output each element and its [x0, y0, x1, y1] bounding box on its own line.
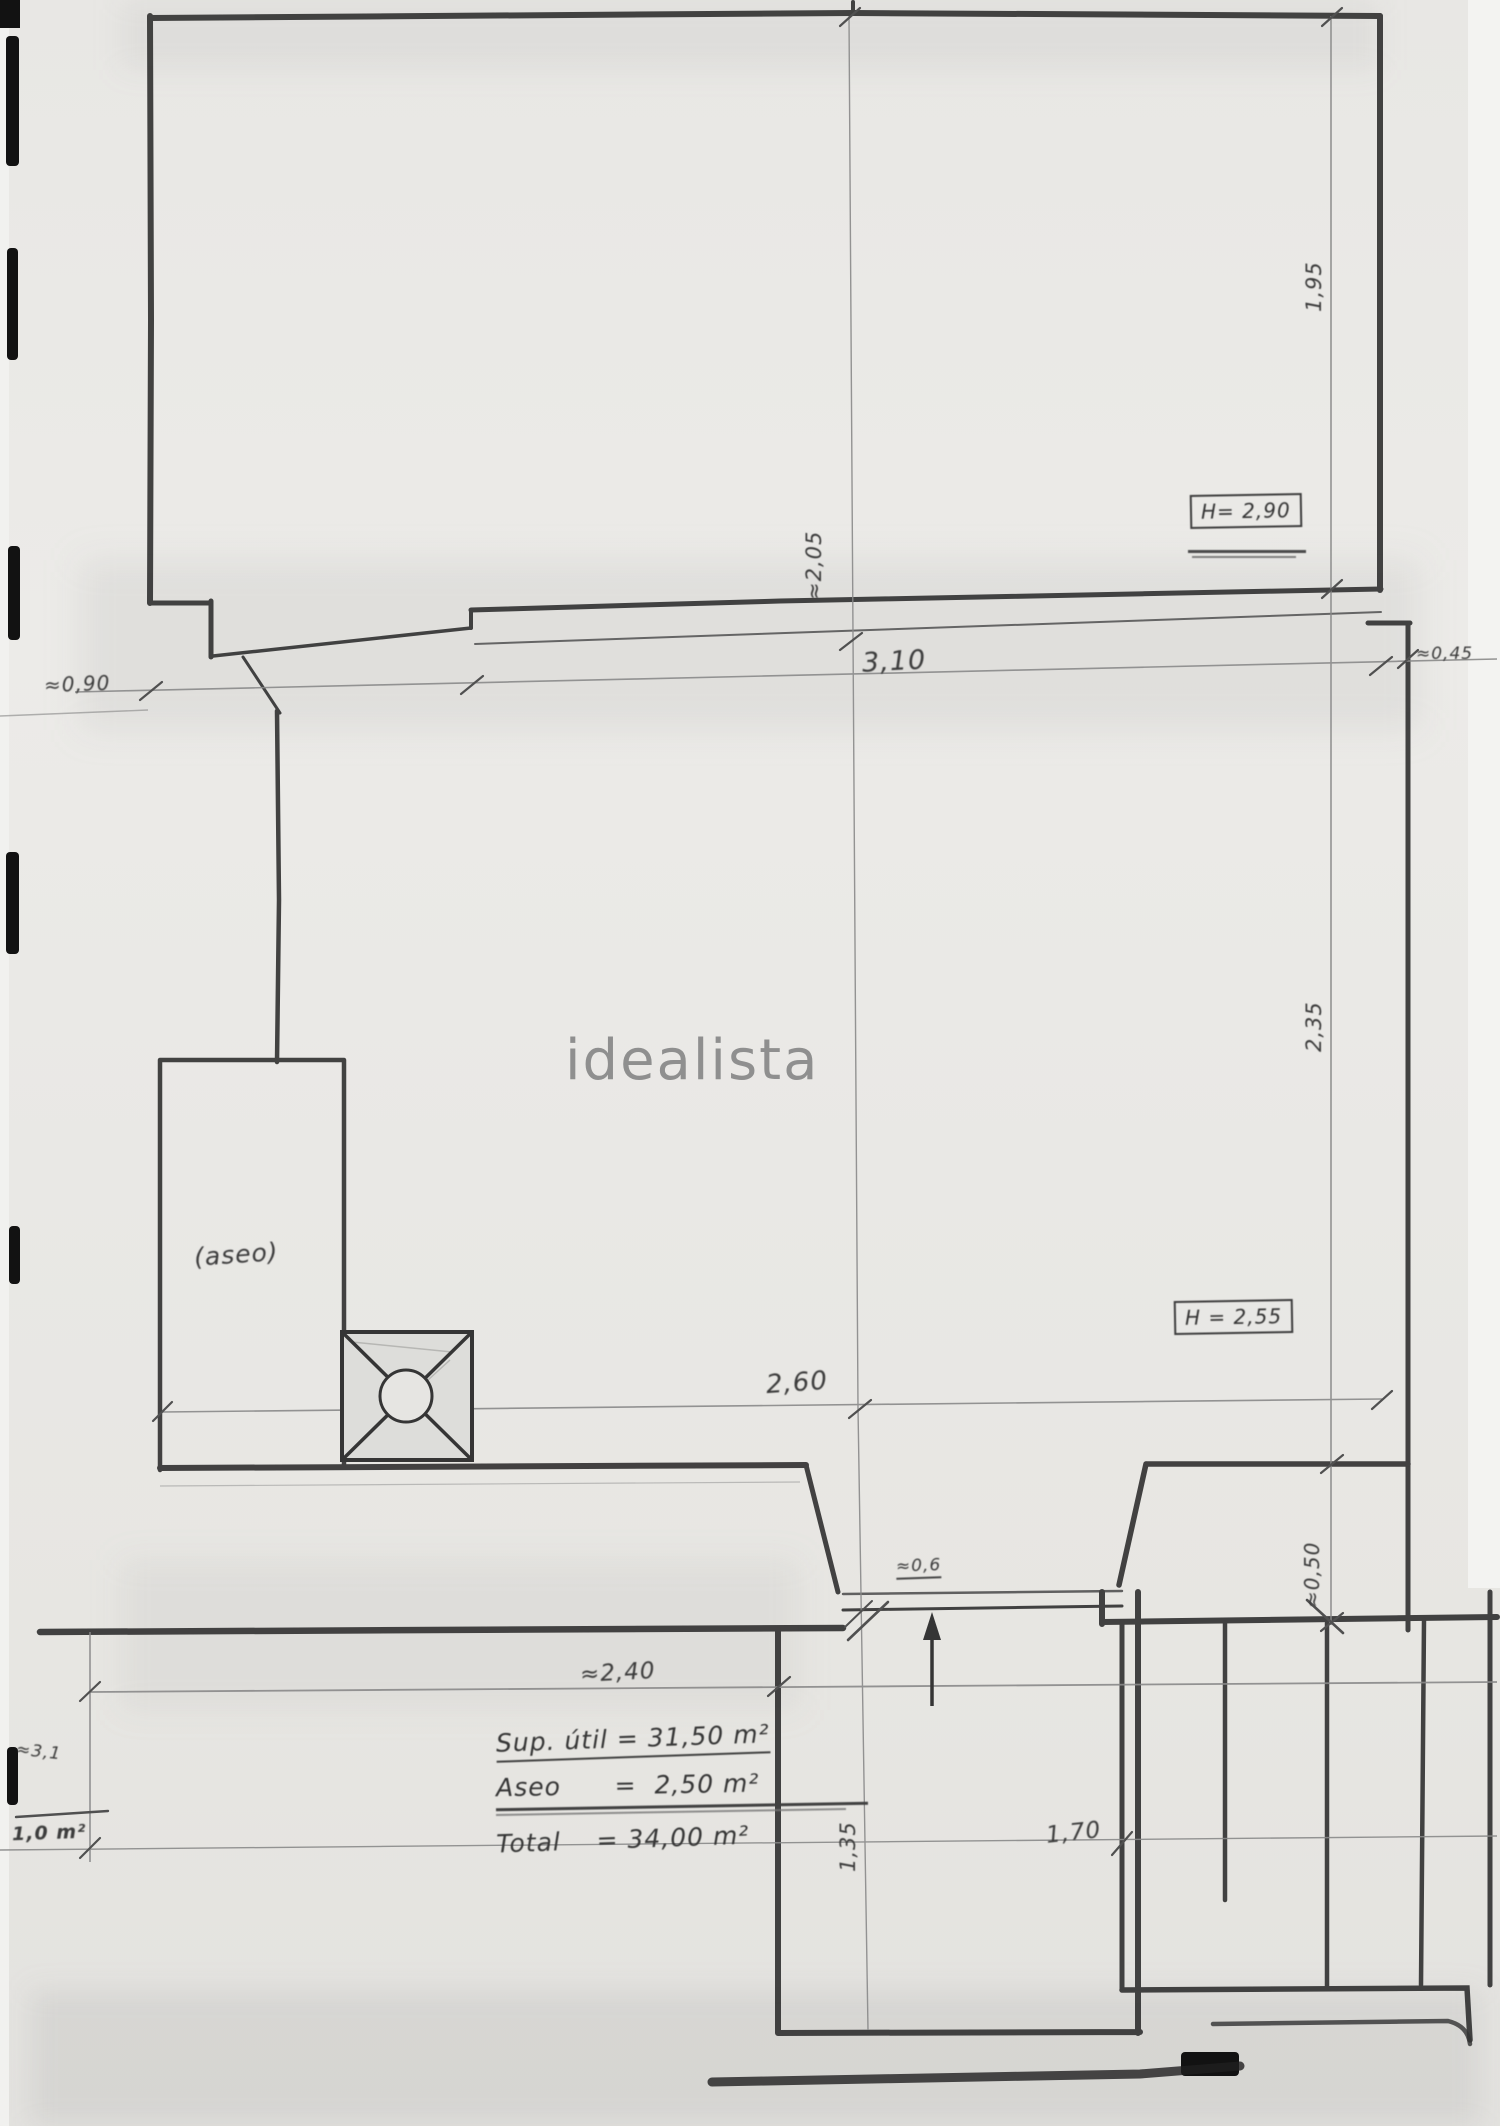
floorplan-scan: idealista 3,10 ≈0,90 ≈0,45 ≈2,05 1,95 2,…	[0, 0, 1500, 2126]
height-note-upper: H= 2,90	[1190, 493, 1302, 529]
room-label-toilet: (aseo)	[193, 1237, 279, 1272]
margin-note-bottom: 1,0 m²	[12, 1821, 87, 1846]
entry-arrow	[923, 1612, 941, 1706]
height-note-lower: H = 2,55	[1174, 1299, 1294, 1335]
paper-bottom-shadow	[712, 2066, 1240, 2082]
dim-label-right-upper: 1,95	[1302, 261, 1326, 312]
dim-label-room-width: 2,60	[765, 1366, 829, 1400]
area-summary: Sup. útil = 31,50 m² Aseo = 2,50 m² Tota…	[496, 1724, 868, 1852]
height-note-upper-underline	[1188, 550, 1306, 553]
dim-label-right-lower: ≈0,50	[1300, 1542, 1324, 1608]
dim-label-top-width: 3,10	[861, 644, 927, 678]
paper-right-margin	[1468, 0, 1500, 1588]
scan-layer: idealista 3,10 ≈0,90 ≈0,45 ≈2,05 1,95 2,…	[0, 0, 1500, 2126]
shower-tray-symbol	[342, 1332, 472, 1460]
dim-label-upper-vertical: ≈2,05	[802, 531, 826, 600]
height-note-upper-underline-2	[1192, 556, 1296, 558]
paper-bottom-shadow-2	[1213, 2021, 1470, 2044]
area-summary-line-2: Aseo = 2,50 m²	[496, 1755, 869, 1802]
idealista-watermark: idealista	[565, 1028, 819, 1093]
dim-label-top-left: ≈0,90	[44, 671, 111, 697]
dim-label-door-width: ≈0,6	[896, 1555, 942, 1580]
dim-label-corridor-width: ≈2,40	[579, 1658, 656, 1688]
dim-label-top-right: ≈0,45	[1416, 644, 1473, 664]
dimension-ticks	[16, 8, 1418, 1858]
dim-label-right-middle: 2,35	[1302, 1001, 1326, 1052]
